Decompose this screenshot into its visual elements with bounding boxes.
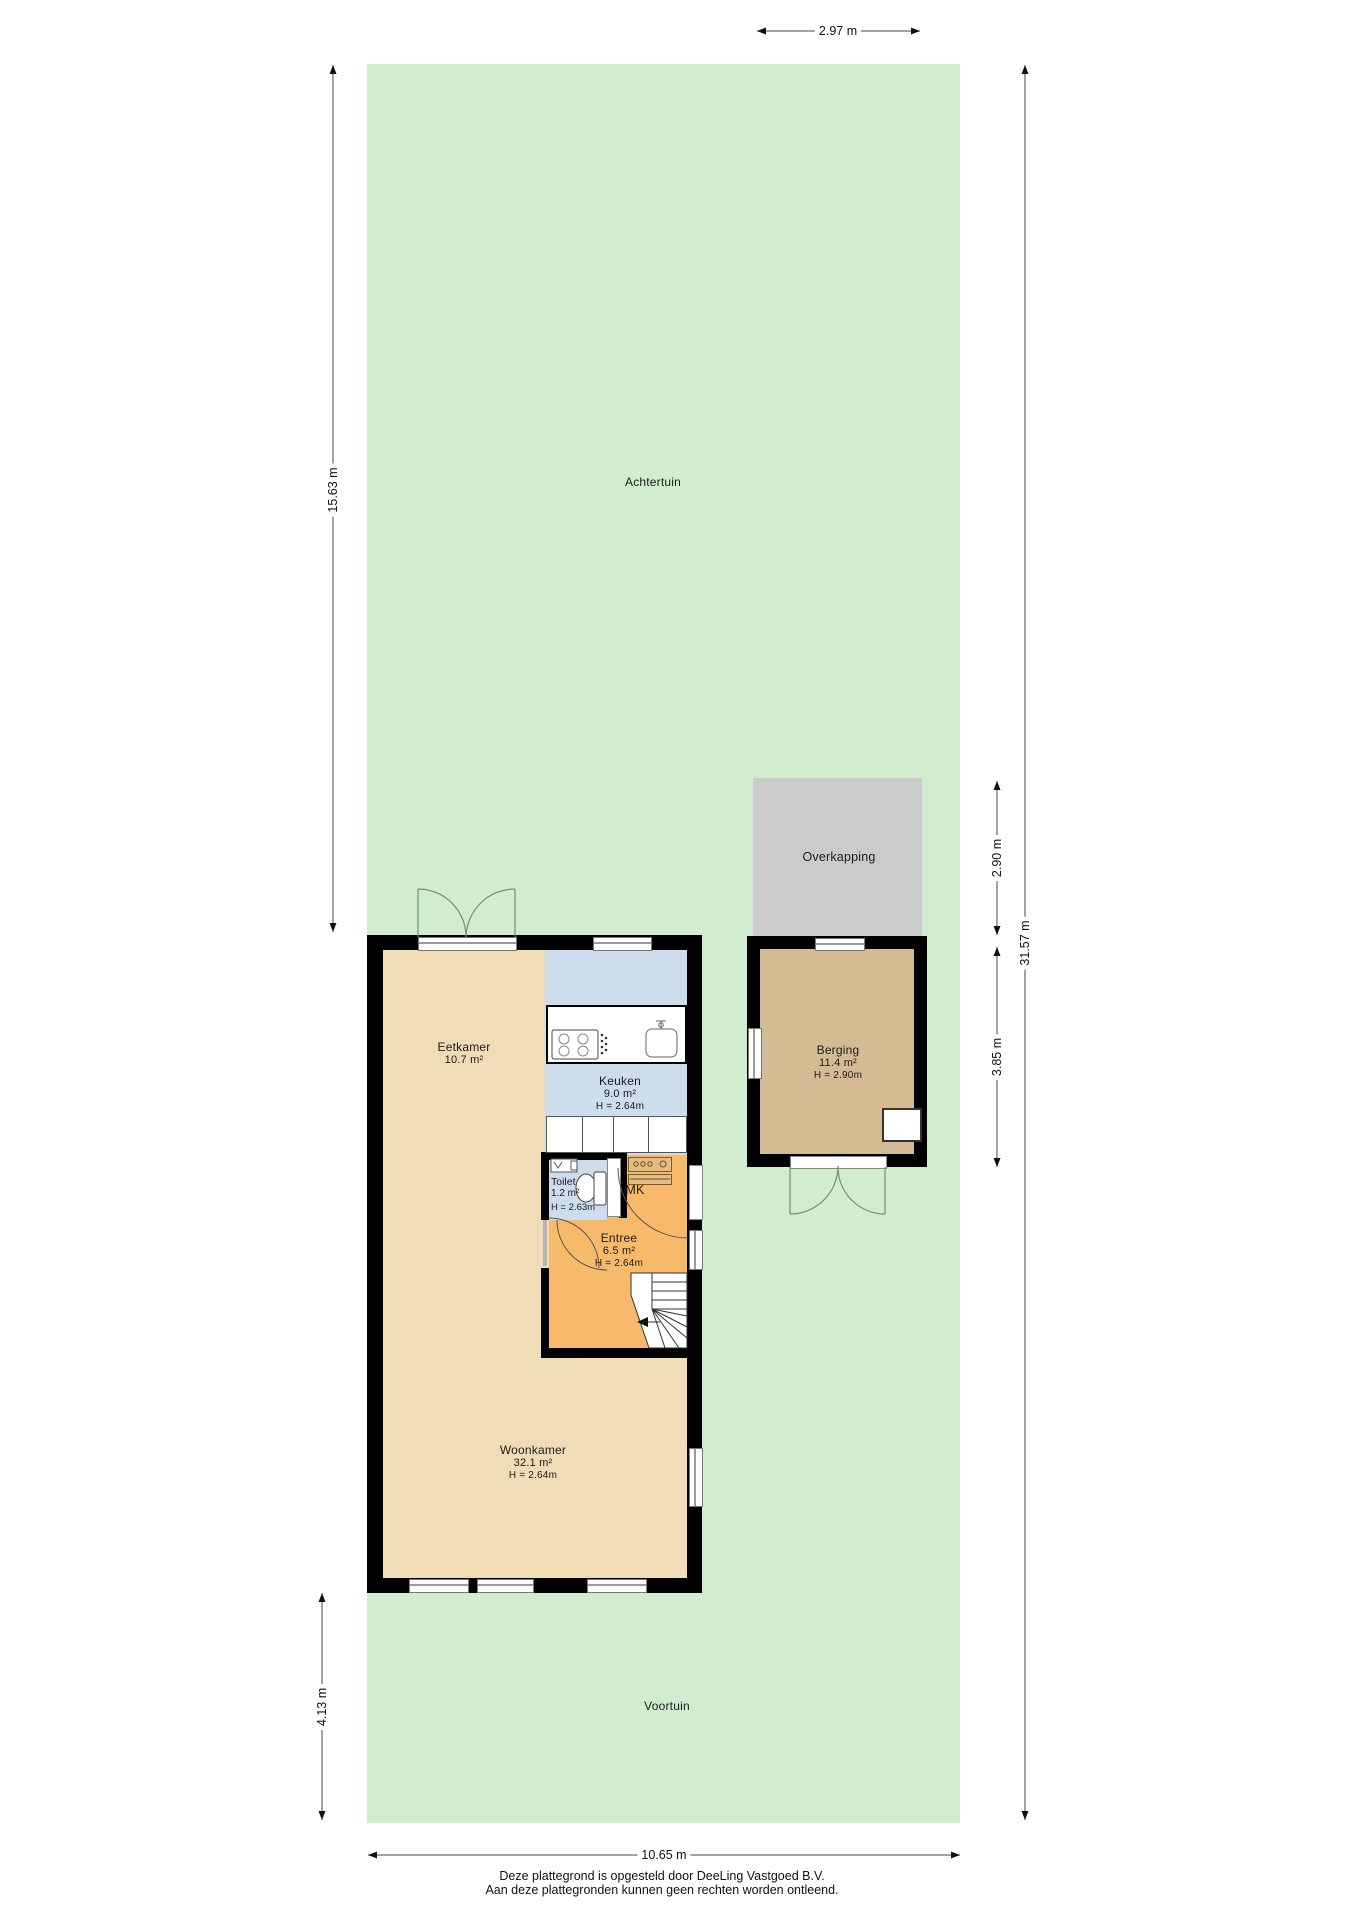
room-name: Berging bbox=[814, 1044, 862, 1057]
room-label-toilet: Toilet 1.2 m² H = 2.63m bbox=[551, 1177, 595, 1213]
interior-wall bbox=[541, 1158, 549, 1220]
window bbox=[593, 937, 652, 951]
garden-doors-threshold bbox=[418, 937, 517, 951]
window bbox=[587, 1579, 647, 1593]
room-height: H = 2.64m bbox=[596, 1101, 644, 1113]
window bbox=[477, 1579, 534, 1593]
cabinet-divider bbox=[582, 1116, 583, 1153]
room-area: 10.7 m² bbox=[438, 1054, 491, 1067]
overkapping-label: Overkapping bbox=[802, 850, 875, 864]
window bbox=[689, 1448, 703, 1507]
footer-line-1: Deze plattegrond is opgesteld door DeeLi… bbox=[485, 1869, 838, 1883]
front-door-opening bbox=[689, 1165, 703, 1220]
room-height: H = 2.63m bbox=[551, 1202, 595, 1213]
room-height: H = 2.90m bbox=[814, 1070, 862, 1082]
interior-wall bbox=[541, 1268, 549, 1358]
room-label-eetkamer: Eetkamer 10.7 m² bbox=[438, 1041, 491, 1067]
dimension-achtertuin-depth: 15.63 m bbox=[326, 463, 340, 516]
hall-door-leaf bbox=[543, 1220, 547, 1266]
room-name: Keuken bbox=[596, 1075, 644, 1088]
room-area: 6.5 m² bbox=[595, 1245, 643, 1258]
room-name: Eetkamer bbox=[438, 1041, 491, 1054]
room-name: Entree bbox=[595, 1232, 643, 1245]
window bbox=[748, 1028, 762, 1079]
room-label-keuken: Keuken 9.0 m² H = 2.64m bbox=[596, 1075, 644, 1113]
room-label-berging: Berging 11.4 m² H = 2.90m bbox=[814, 1044, 862, 1082]
dimension-overkapping-width: 2.97 m bbox=[815, 24, 861, 38]
room-label-entree: Entree 6.5 m² H = 2.64m bbox=[595, 1232, 643, 1270]
kitchen-counter bbox=[546, 1005, 687, 1064]
berging-fixture bbox=[882, 1108, 922, 1142]
window bbox=[689, 1230, 703, 1270]
toilet-door-leaf bbox=[607, 1158, 621, 1217]
room-area: 9.0 m² bbox=[596, 1088, 644, 1101]
dimension-voortuin-depth: 4.13 m bbox=[315, 1684, 329, 1730]
dimension-overkapping-depth: 2.90 m bbox=[990, 835, 1004, 881]
dimension-plot-width: 10.65 m bbox=[637, 1848, 690, 1862]
room-name: Woonkamer bbox=[500, 1444, 566, 1457]
back-garden-label: Achtertuin bbox=[625, 475, 681, 489]
kitchen-cabinets bbox=[546, 1116, 687, 1153]
room-area: 32.1 m² bbox=[500, 1457, 566, 1470]
cabinet-divider bbox=[648, 1116, 649, 1153]
floorplan-canvas: Achtertuin Voortuin Overkapping MK Eetka… bbox=[0, 0, 1358, 1920]
dimension-berging-depth: 3.85 m bbox=[990, 1034, 1004, 1080]
meter-cabinet bbox=[628, 1157, 672, 1172]
footer-disclaimer: Deze plattegrond is opgesteld door DeeLi… bbox=[485, 1869, 838, 1897]
window bbox=[815, 938, 865, 951]
meter-cabinet-label: MK bbox=[625, 1183, 644, 1197]
berging-doors-threshold bbox=[790, 1156, 887, 1169]
room-area: 11.4 m² bbox=[814, 1057, 862, 1070]
footer-line-2: Aan deze plattegronden kunnen geen recht… bbox=[485, 1883, 838, 1897]
room-area: 1.2 m² bbox=[551, 1188, 595, 1199]
front-garden-label: Voortuin bbox=[644, 1699, 690, 1713]
room-name: Toilet bbox=[551, 1177, 595, 1188]
room-height: H = 2.64m bbox=[595, 1258, 643, 1270]
cabinet-divider bbox=[613, 1116, 614, 1153]
interior-wall bbox=[541, 1348, 687, 1358]
dimension-total-depth: 31.57 m bbox=[1018, 916, 1032, 969]
room-label-woonkamer: Woonkamer 32.1 m² H = 2.64m bbox=[500, 1444, 566, 1482]
window bbox=[409, 1579, 469, 1593]
room-height: H = 2.64m bbox=[500, 1470, 566, 1482]
